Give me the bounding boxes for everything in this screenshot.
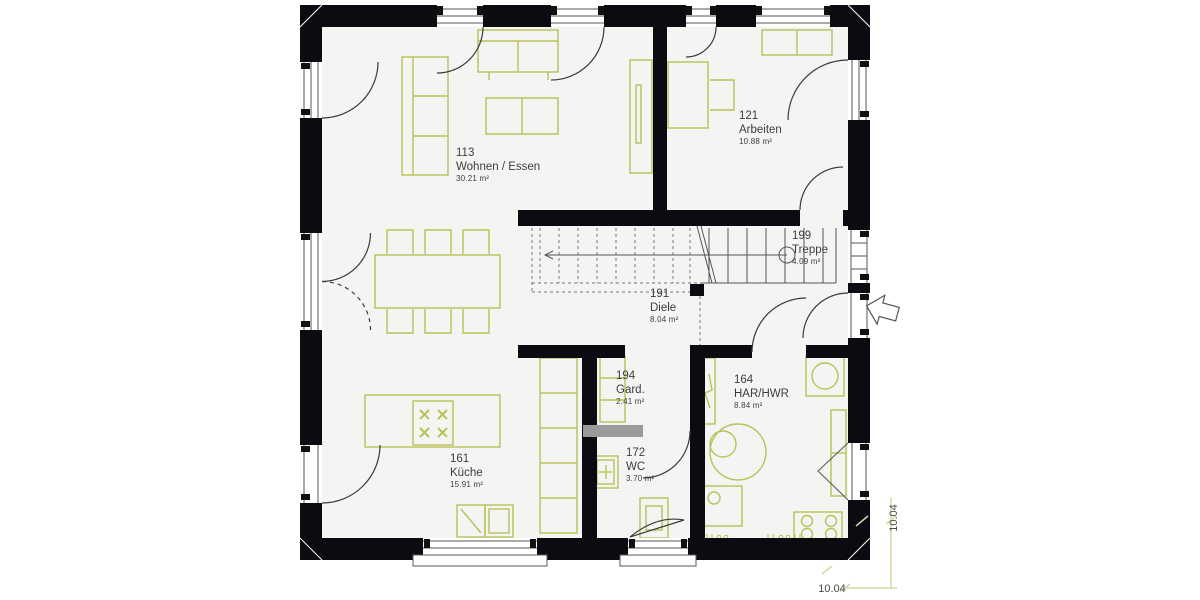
room-number: 113 — [456, 146, 540, 160]
room-name: WC — [626, 460, 655, 474]
newel-post — [690, 284, 704, 296]
french-door — [300, 233, 322, 330]
room-number: 161 — [450, 452, 483, 466]
room-label-arbeiten: 121 Arbeiten 10.88 m² — [739, 109, 782, 147]
room-number: 121 — [739, 109, 782, 123]
room-label-diele: 191 Diele 8.04 m² — [650, 287, 679, 325]
room-area: 2.41 m² — [616, 397, 645, 407]
room-number: 172 — [626, 446, 655, 460]
room-area: 8.04 m² — [650, 315, 679, 325]
room-label-har-hwr: 164 HAR/HWR 8.84 m² — [734, 373, 789, 411]
room-area: 10.88 m² — [739, 137, 782, 147]
room-number: 191 — [650, 287, 679, 301]
window — [437, 5, 483, 27]
room-label-garderobe: 194 Gard. 2.41 m² — [616, 369, 645, 407]
room-number: 164 — [734, 373, 789, 387]
dimension-label-bottom: 10.04 — [810, 583, 854, 595]
room-label-wc: 172 WC 3.70 m² — [626, 446, 655, 484]
window — [551, 5, 604, 27]
window — [620, 538, 696, 566]
room-name: Arbeiten — [739, 123, 782, 137]
window — [300, 62, 322, 118]
room-name: Küche — [450, 466, 483, 480]
room-label-treppe: 199 Treppe 4.09 m² — [792, 229, 828, 267]
room-label-kueche: 161 Küche 15.91 m² — [450, 452, 483, 490]
room-area: 3.70 m² — [626, 474, 655, 484]
entrance-door-opening — [848, 293, 870, 338]
room-number: 194 — [616, 369, 645, 383]
room-name: Wohnen / Essen — [456, 160, 540, 174]
room-number: 199 — [792, 229, 828, 243]
room-label-wohnen-essen: 113 Wohnen / Essen 30.21 m² — [456, 146, 540, 184]
window — [413, 538, 547, 566]
dimension-label-right: 10.04 — [888, 496, 900, 540]
room-area: 30.21 m² — [456, 174, 540, 184]
room-area: 15.91 m² — [450, 480, 483, 490]
room-area: 8.84 m² — [734, 401, 789, 411]
room-name: HAR/HWR — [734, 387, 789, 401]
window — [756, 5, 830, 27]
window — [848, 60, 870, 120]
floorplan-canvas: 113 Wohnen / Essen 30.21 m² 121 Arbeiten… — [0, 0, 1200, 600]
room-area: 4.09 m² — [792, 257, 828, 267]
door-opening — [300, 445, 322, 503]
room-name: Treppe — [792, 243, 828, 257]
window — [686, 5, 716, 27]
floorplan-drawing — [0, 0, 1200, 600]
room-name: Diele — [650, 301, 679, 315]
window — [848, 230, 870, 283]
room-name: Gard. — [616, 383, 645, 397]
wc-partition — [583, 425, 643, 437]
